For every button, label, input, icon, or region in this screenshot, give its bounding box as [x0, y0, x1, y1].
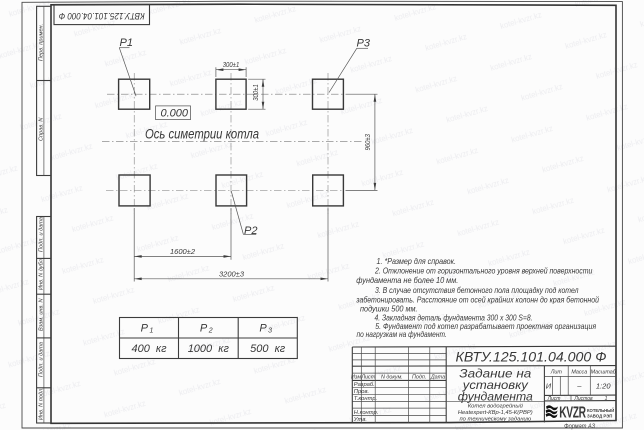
- svg-text:3200±3: 3200±3: [219, 269, 244, 278]
- svg-text:по нагрузкам на фундамент.: по нагрузкам на фундамент.: [357, 329, 447, 339]
- svg-text:Формат А3: Формат А3: [564, 423, 595, 430]
- svg-text:КВТУ.125.101.04.000 Ф: КВТУ.125.101.04.000 Ф: [456, 350, 607, 365]
- svg-text:Масса: Масса: [571, 369, 587, 375]
- svg-text:КВТУ.125.101.04.000 Ф: КВТУ.125.101.04.000 Ф: [58, 10, 144, 21]
- svg-text:ЗАВОД РЭП: ЗАВОД РЭП: [587, 414, 613, 420]
- svg-text:Н.контр.: Н.контр.: [354, 410, 379, 416]
- svg-text:300±1: 300±1: [251, 84, 260, 101]
- svg-text:Справ. N: Справ. N: [38, 117, 44, 141]
- svg-text:2. Отклонение от горизонтальн: 2. Отклонение от горизонтального уровня …: [374, 266, 593, 276]
- svg-text:960±3: 960±3: [363, 134, 372, 151]
- svg-text:1600±2: 1600±2: [170, 247, 195, 256]
- svg-text:Heatexpert-КВр-1,45-К(РВР): Heatexpert-КВр-1,45-К(РВР): [458, 410, 533, 416]
- svg-text:Пров.: Пров.: [354, 389, 369, 395]
- svg-text:KVZR: KVZR: [559, 404, 586, 421]
- svg-text:установку: установку: [462, 380, 530, 392]
- svg-text:1000 кг: 1000 кг: [188, 343, 230, 355]
- svg-text:1: 1: [605, 396, 608, 402]
- svg-text:–: –: [576, 381, 582, 390]
- svg-text:N докум.: N докум.: [381, 375, 403, 381]
- svg-text:Взам. инв. N: Взам. инв. N: [38, 297, 44, 331]
- svg-text:по техническому заданию: по техническому заданию: [459, 416, 531, 422]
- svg-text:Инв. N дубл.: Инв. N дубл.: [38, 258, 44, 290]
- svg-text:Подп. и дата: Подп. и дата: [38, 217, 44, 252]
- svg-text:Р1: Р1: [120, 37, 133, 49]
- svg-text:фундамента не более 10 мм.: фундамента не более 10 мм.: [356, 275, 458, 285]
- svg-text:И: И: [546, 382, 552, 391]
- svg-text:Утв.: Утв.: [353, 417, 367, 423]
- svg-text:500 кг: 500 кг: [250, 343, 286, 355]
- svg-text:Перв. примен.: Перв. примен.: [38, 24, 44, 61]
- svg-text:Р2: Р2: [244, 225, 257, 237]
- svg-text:0.000: 0.000: [161, 108, 189, 120]
- svg-text:Котел водогрейный: Котел водогрейный: [468, 403, 524, 410]
- svg-text:300±1: 300±1: [223, 60, 240, 69]
- svg-text:400 кг: 400 кг: [131, 343, 167, 355]
- svg-text:Р3: Р3: [357, 37, 371, 49]
- svg-text:Лит: Лит: [550, 369, 563, 375]
- svg-text:Лист: Лист: [547, 396, 561, 402]
- svg-text:Масштаб: Масштаб: [591, 369, 617, 375]
- svg-text:Лист: Лист: [360, 375, 375, 381]
- svg-text:Т.контр.: Т.контр.: [354, 396, 377, 402]
- svg-text:Листов: Листов: [573, 396, 593, 402]
- svg-text:1:20: 1:20: [596, 382, 611, 391]
- svg-text:1. *Размер для справок.: 1. *Размер для справок.: [377, 256, 457, 266]
- svg-text:Подп. и дата: Подп. и дата: [38, 342, 44, 377]
- svg-text:Разраб.: Разраб.: [354, 382, 375, 388]
- svg-text:Ось симетрии котла: Ось симетрии котла: [145, 127, 259, 142]
- svg-text:Подп.: Подп.: [412, 375, 426, 381]
- svg-text:Инв. N подл.: Инв. N подл.: [38, 387, 44, 420]
- svg-text:Дата: Дата: [430, 375, 445, 381]
- svg-text:Задание на: Задание на: [459, 368, 531, 380]
